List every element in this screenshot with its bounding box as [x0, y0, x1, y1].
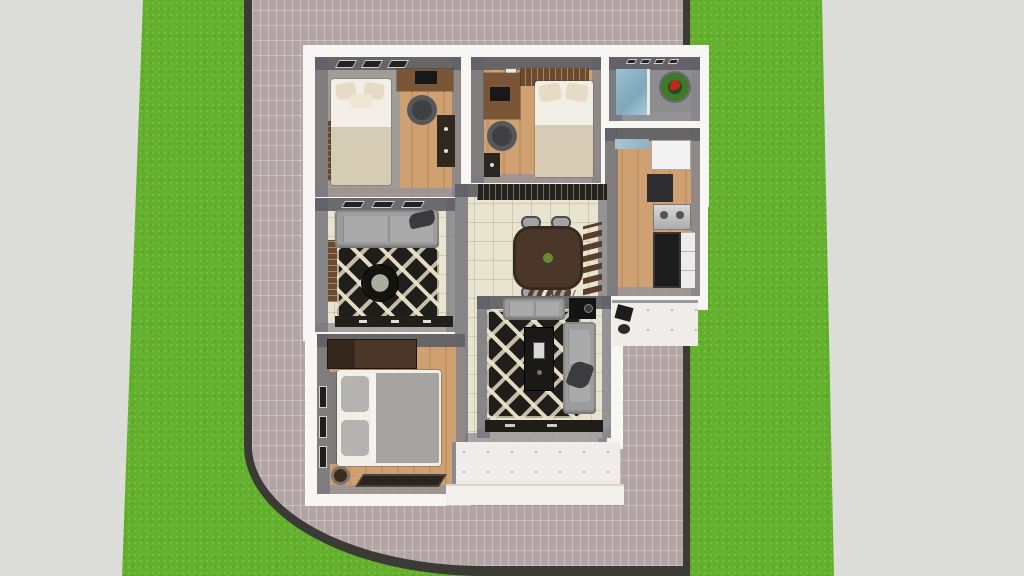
kitchen-cabinets [681, 232, 695, 288]
bed-pillow [538, 82, 563, 103]
walkway-equipment [618, 324, 630, 334]
tv-speaker [569, 298, 596, 319]
kitchen-stove [653, 204, 691, 230]
speaker-cone-icon [584, 304, 593, 313]
kitchen-fridge [651, 140, 691, 170]
hall-closet [477, 184, 607, 200]
bedroom-2 [471, 57, 601, 183]
master-window-icon [319, 416, 327, 438]
living-room [315, 198, 455, 332]
tv-sofa-right [563, 322, 596, 414]
bedroom2-cabinet [484, 153, 500, 177]
console-knob [391, 320, 399, 323]
tv-media-unit [525, 328, 553, 390]
bedroom1-window-icon [387, 60, 409, 68]
terrace-step [446, 484, 624, 505]
living-sofa [335, 210, 439, 248]
living-window-icon [401, 201, 425, 208]
sofa-cushion [535, 302, 559, 316]
bedroom1-desk [397, 69, 453, 91]
stove-burner-icon [660, 211, 668, 219]
dresser-handle [444, 127, 448, 131]
sofa-cushion [509, 302, 533, 316]
bathroom-vent-icon [640, 59, 652, 64]
floorplan-render [0, 0, 1024, 576]
master-wardrobe [328, 340, 416, 368]
table-plant-icon [543, 253, 553, 263]
walkway-equipment [614, 304, 633, 322]
master-window-icon [319, 446, 327, 468]
living-window-icon [371, 201, 395, 208]
master-window-icon [319, 386, 327, 408]
bathroom-vent-icon [654, 59, 666, 64]
master-pouf [331, 466, 350, 485]
living-coffee-table [363, 266, 397, 300]
bathroom-vent-icon [626, 59, 638, 64]
dining-table [513, 226, 583, 290]
bed-pillow-gray [341, 376, 369, 412]
bedroom2-office-chair [487, 121, 517, 151]
kitchen-window [615, 139, 649, 149]
bedroom2-bed [535, 81, 593, 177]
tv-sofa-top [503, 298, 565, 320]
tv-screen-icon [533, 342, 545, 359]
sofa-cushion [568, 330, 590, 364]
sofa-cushion [343, 216, 387, 242]
bedroom2-desk [484, 73, 520, 119]
bathroom-shower [616, 69, 650, 115]
living-window-icon [341, 201, 365, 208]
louver-divider [583, 222, 602, 307]
bed-pillow [350, 94, 372, 108]
bed-blanket [331, 127, 391, 185]
bed-pillow-gray [341, 420, 369, 456]
master-headboard [329, 372, 337, 464]
bedroom1-window-icon [335, 60, 357, 68]
console-knob [423, 320, 431, 323]
counter-item [547, 424, 557, 427]
terrace [452, 442, 620, 506]
media-knob [537, 370, 542, 375]
bed-pillow [565, 82, 589, 102]
kitchen-tall-unit [647, 174, 673, 202]
tv-room-counter [485, 420, 603, 432]
bed-blanket [535, 125, 593, 177]
bedroom-1 [315, 57, 461, 197]
bedroom1-bed [331, 79, 391, 185]
counter-item [505, 424, 515, 427]
bedroom1-dresser [437, 115, 455, 167]
terrace-tiles [452, 442, 620, 484]
family-room [477, 296, 611, 438]
console-knob [359, 320, 367, 323]
desk-monitor-icon [490, 87, 510, 101]
plant-flower-icon [670, 80, 680, 90]
bathroom [609, 57, 700, 121]
bathroom-vent-icon [668, 59, 680, 64]
dresser-handle [444, 149, 448, 153]
bedroom1-office-chair [407, 95, 437, 125]
living-shutter [328, 240, 337, 302]
master-rug [355, 474, 447, 487]
desk-monitor-icon [415, 71, 437, 84]
kitchen [605, 128, 700, 296]
stove-burner-icon [676, 211, 684, 219]
side-walkway [612, 300, 698, 346]
bedroom1-window-icon [361, 60, 383, 68]
cabinet-handle [490, 163, 494, 167]
bed-fold-highlight [371, 374, 376, 462]
bathroom-plant [661, 73, 689, 101]
kitchen-counter [653, 232, 681, 288]
master-bedroom [317, 334, 465, 494]
bed-blanket-gray [375, 373, 439, 463]
master-bed [337, 370, 441, 466]
living-console [335, 316, 453, 327]
